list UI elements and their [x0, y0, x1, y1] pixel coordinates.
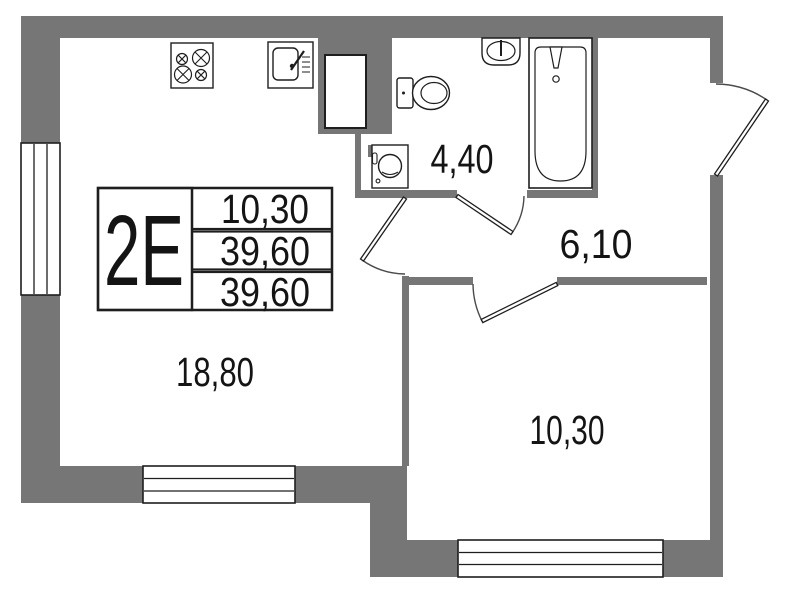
- washing-machine-icon: [372, 145, 408, 188]
- wall-top: [21, 16, 723, 38]
- wall-kitchen-bath-thin: [355, 134, 361, 198]
- wall-right-main: [710, 175, 723, 577]
- living-kitchen-area-label: 18,80: [176, 349, 254, 395]
- wall-kitchen-bedroom: [402, 276, 409, 466]
- floor-plan: 18,80 4,40 6,10 10,30 2Е 10,30 39,60 39,…: [0, 0, 799, 600]
- window-living-bottom: [143, 466, 295, 503]
- wall-right-top: [710, 16, 723, 83]
- bedroom-area-label: 10,30: [530, 407, 605, 453]
- window-left: [21, 143, 60, 295]
- wall-bath-bottom-1: [355, 190, 457, 198]
- vent-shaft: [325, 55, 366, 128]
- wall-left-upper: [21, 16, 60, 143]
- bathroom-area-label: 4,40: [431, 136, 494, 182]
- hallway-area-label: 6,10: [560, 221, 633, 267]
- unit-code: 2Е: [104, 195, 184, 307]
- unit-area-row-3: 39,60: [220, 269, 310, 315]
- unit-area-row-2: 39,60: [220, 228, 310, 274]
- wall-bath-bottom-2: [527, 190, 598, 198]
- unit-info-table: 2Е 10,30 39,60 39,60: [98, 186, 332, 315]
- bathtub-icon: [529, 38, 592, 188]
- unit-area-row-1: 10,30: [221, 186, 309, 232]
- wall-bath-right: [592, 38, 598, 190]
- wall-gap-artifact: [707, 277, 710, 285]
- wall-bottom-left: [21, 466, 143, 503]
- toilet-icon: [397, 77, 450, 110]
- washbasin-icon: [482, 38, 520, 65]
- wall-bedroom-bottom-left: [407, 540, 458, 577]
- stove-icon: [171, 43, 213, 88]
- wall-step: [370, 466, 407, 577]
- kitchen-sink-icon: [268, 42, 313, 88]
- window-bedroom-bottom: [458, 540, 663, 577]
- wall-bedroom-top-right: [557, 277, 710, 285]
- wall-bedroom-top-left: [402, 277, 473, 285]
